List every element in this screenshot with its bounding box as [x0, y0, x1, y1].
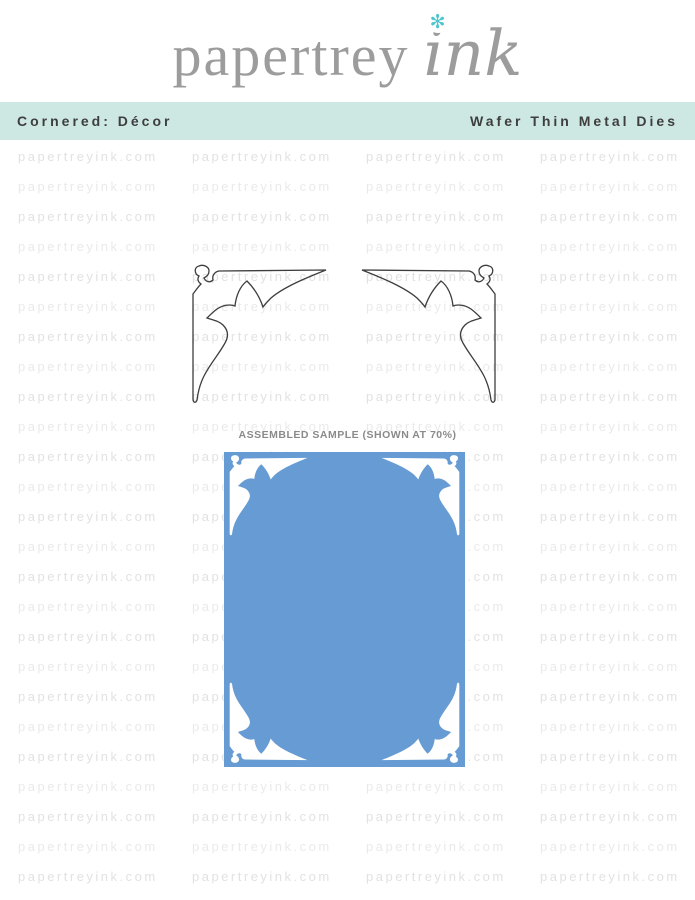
product-type-label: Wafer Thin Metal Dies	[470, 113, 678, 129]
product-name-label: Cornered: Décor	[17, 113, 172, 129]
brand-name-serif: papertrey	[173, 10, 410, 102]
flower-icon: ✻	[428, 13, 448, 33]
product-banner: Cornered: Décor Wafer Thin Metal Dies	[0, 102, 695, 140]
product-image-page: papertreyink.compapertreyink.compapertre…	[0, 0, 695, 900]
brand-logo: papertrey ink ✻	[0, 10, 695, 102]
assembled-sample-caption: ASSEMBLED SAMPLE (SHOWN AT 70%)	[0, 429, 695, 441]
brand-name-script-wrap: ink ✻	[424, 17, 523, 90]
die-outline-right	[362, 265, 495, 402]
die-outline-left	[193, 265, 326, 402]
sample-card	[224, 452, 465, 767]
